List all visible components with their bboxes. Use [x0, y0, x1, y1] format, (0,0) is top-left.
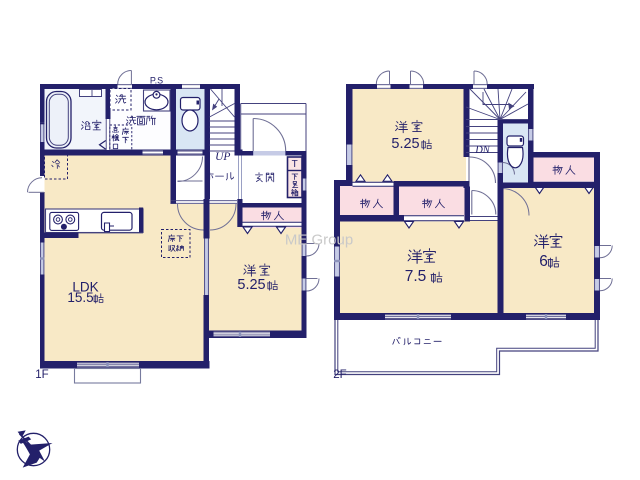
- svg-text:DN: DN: [474, 145, 491, 156]
- svg-text:15.5: 15.5: [67, 290, 93, 305]
- svg-text:UP: UP: [215, 151, 230, 163]
- svg-text:P.S: P.S: [150, 75, 163, 85]
- svg-text:5.25: 5.25: [391, 136, 419, 152]
- svg-text:7.5: 7.5: [405, 268, 427, 285]
- svg-text:2F: 2F: [333, 369, 346, 381]
- svg-text:ME Group: ME Group: [285, 231, 353, 248]
- svg-text:1F: 1F: [35, 369, 48, 381]
- svg-text:5.25: 5.25: [237, 277, 265, 293]
- svg-text:6: 6: [539, 253, 548, 270]
- svg-text:T: T: [292, 159, 298, 170]
